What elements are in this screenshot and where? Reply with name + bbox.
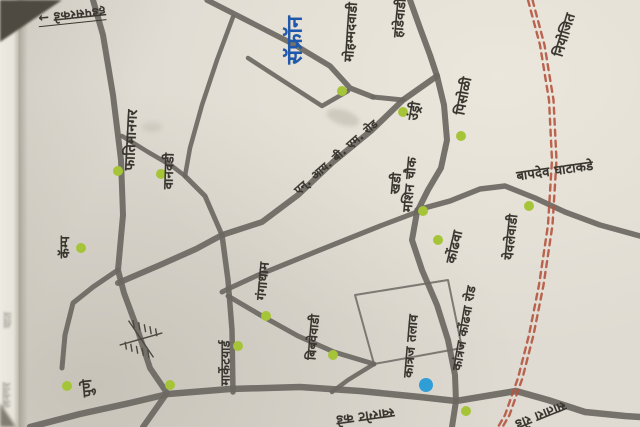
label-pune: पुणे xyxy=(80,378,96,397)
road-triangle-merge xyxy=(373,97,403,100)
road-top-handewadi xyxy=(410,0,437,76)
label-fatimanagar-text: फातिमानगर xyxy=(122,109,141,171)
road-wanwadi-up xyxy=(185,17,233,176)
marker-yevalewadi xyxy=(524,201,534,211)
label-khadi-machine-chowk: खडीमशिन चौक xyxy=(388,155,421,212)
marker-swargate-jn xyxy=(165,380,175,390)
road-pisoli-stretch xyxy=(417,76,447,212)
label-undri-text: उंड्री xyxy=(405,100,424,121)
marker-khadi-chowk xyxy=(418,206,428,216)
map-photo: सॅफ्रॉनहडपसरकडे →फातिमानगरवानवडीमोहम्मदव… xyxy=(0,0,640,427)
label-market-yard-text: मार्केटयार्ड xyxy=(217,340,232,385)
label-market-yard: मार्केटयार्ड xyxy=(218,340,232,385)
railway-crossing-symbol xyxy=(119,319,163,360)
marker-katraj xyxy=(461,406,471,416)
marker-katraj-talav xyxy=(419,378,433,392)
marker-pisoli xyxy=(456,131,466,141)
road-katraj-stub xyxy=(452,401,456,427)
marker-kondhwa xyxy=(433,235,443,245)
title-saffron: सॅफ्रॉन xyxy=(284,16,307,64)
road-network xyxy=(0,0,640,427)
label-undri: उंड्री xyxy=(406,101,424,122)
label-wanwadi-text: वानवडी xyxy=(161,152,177,189)
road-wanwadi-down xyxy=(185,176,222,235)
label-pune-text: पुणे xyxy=(79,378,97,397)
marker-mohammadwadi xyxy=(337,86,347,96)
road-to-pune xyxy=(62,270,118,368)
marker-market-yard xyxy=(233,341,243,351)
road-fatimanagar xyxy=(93,0,167,427)
margin-bleed-text-1-text: यात xyxy=(1,312,14,328)
label-fatimanagar: फातिमानगर xyxy=(123,109,141,171)
marker-pune xyxy=(62,381,72,391)
label-wanwadi: वानवडी xyxy=(162,152,177,189)
marker-bibwewadi xyxy=(328,350,338,360)
road-gangadham-lake xyxy=(228,296,374,364)
marker-gangadham xyxy=(261,311,271,321)
label-camp-text: कॅम्प xyxy=(58,236,73,258)
photo-corner-shadow xyxy=(0,403,16,427)
road-upper-connector xyxy=(248,58,348,106)
title-saffron-text: सॅफ्रॉन xyxy=(283,16,307,64)
label-camp: कॅम्प xyxy=(59,236,73,258)
marker-camp xyxy=(76,243,86,253)
margin-bleed-text-1: यात xyxy=(2,312,14,328)
photo-corner-shadow xyxy=(0,0,62,42)
